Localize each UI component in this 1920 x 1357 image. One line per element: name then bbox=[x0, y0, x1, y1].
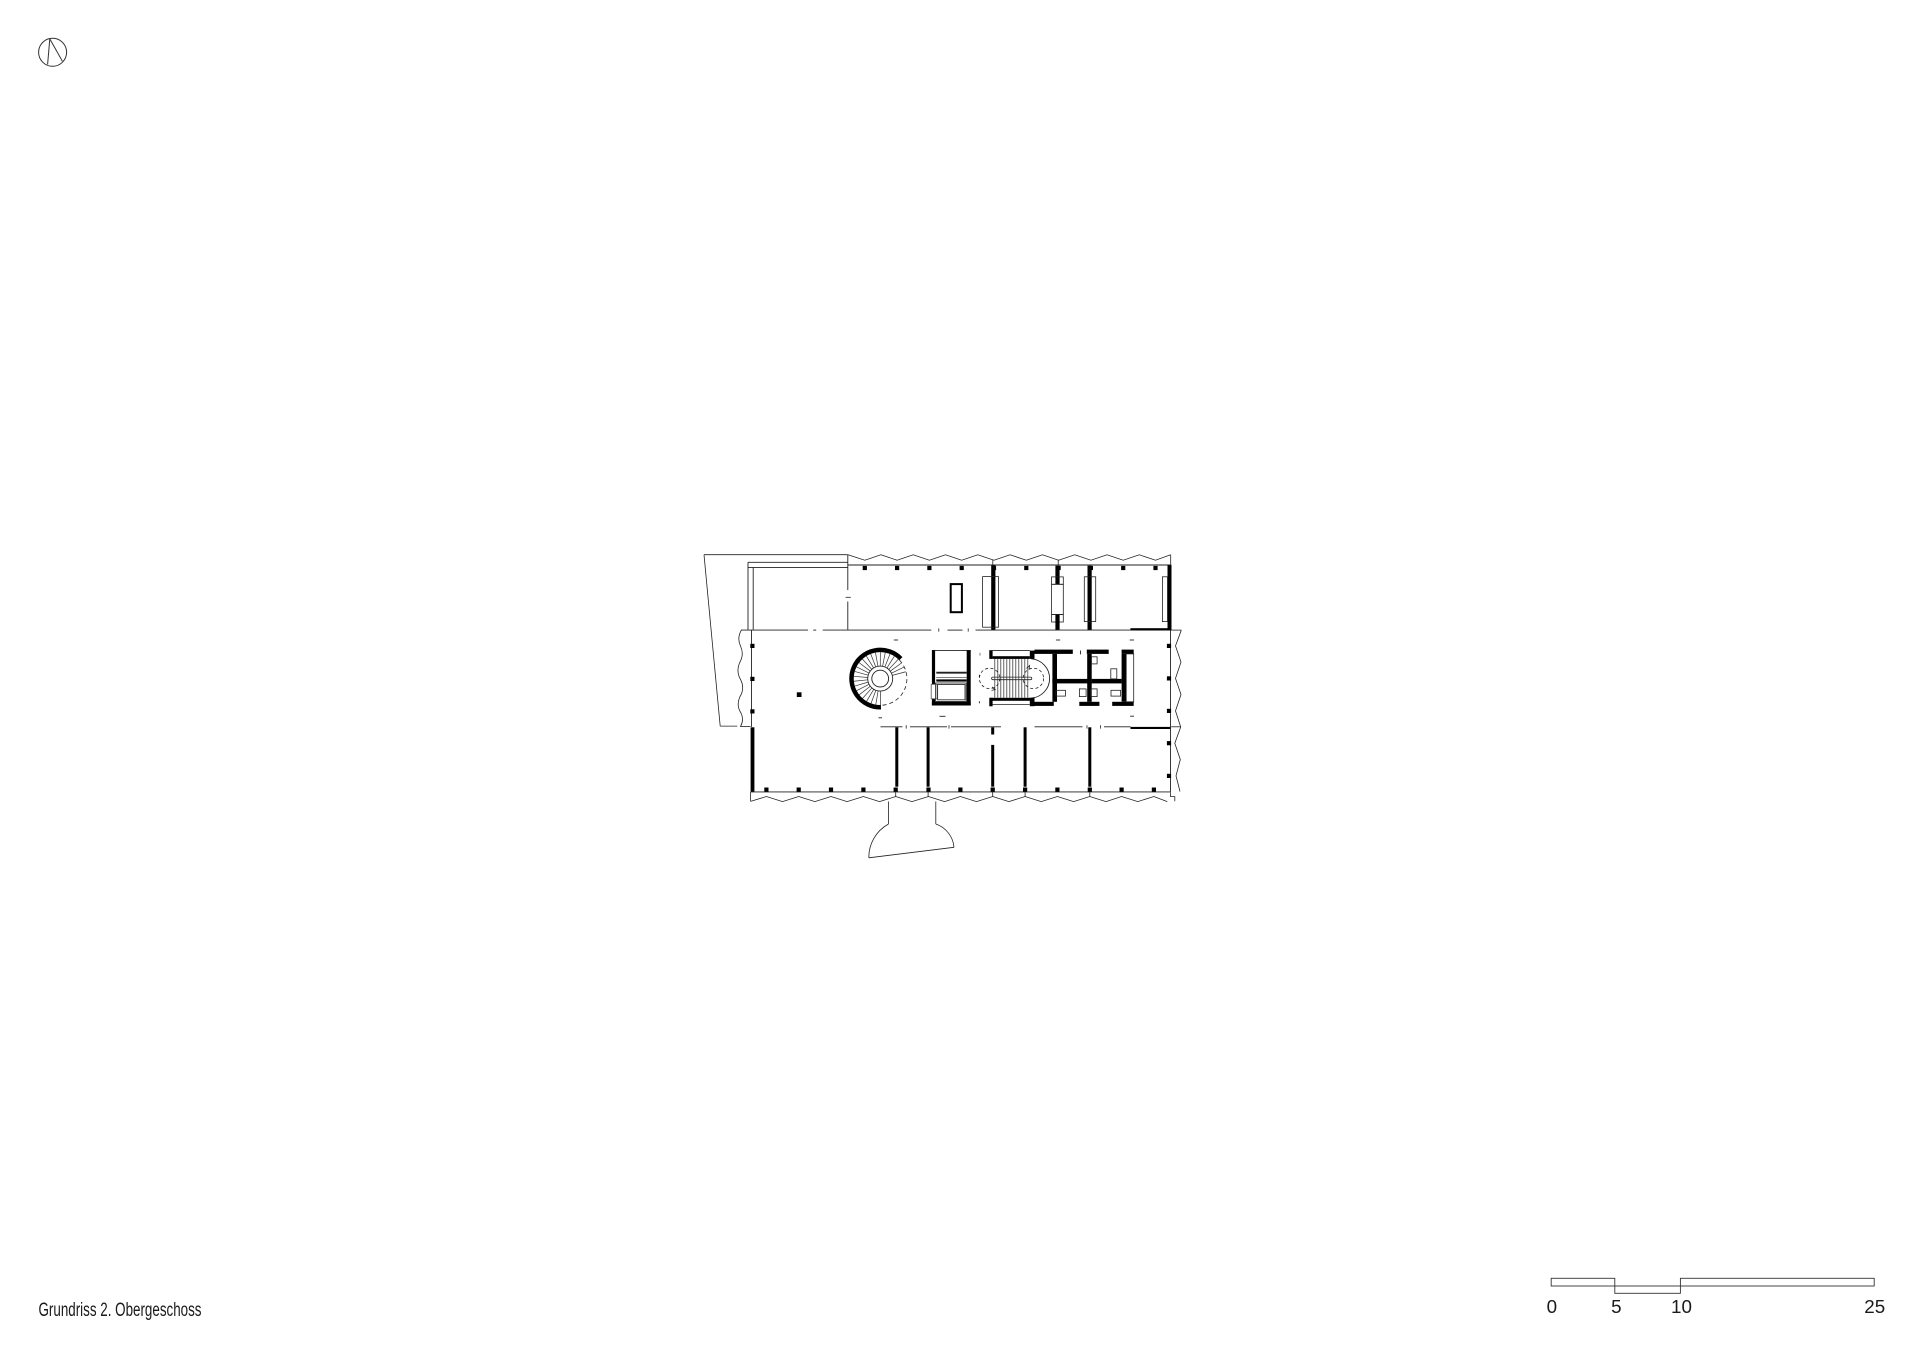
svg-text:Grundriss 2. Obergeschoss: Grundriss 2. Obergeschoss bbox=[39, 1300, 202, 1321]
svg-text:0: 0 bbox=[1547, 1296, 1557, 1317]
svg-text:25: 25 bbox=[1864, 1296, 1885, 1317]
svg-text:5: 5 bbox=[1611, 1296, 1621, 1317]
svg-text:10: 10 bbox=[1671, 1296, 1692, 1317]
